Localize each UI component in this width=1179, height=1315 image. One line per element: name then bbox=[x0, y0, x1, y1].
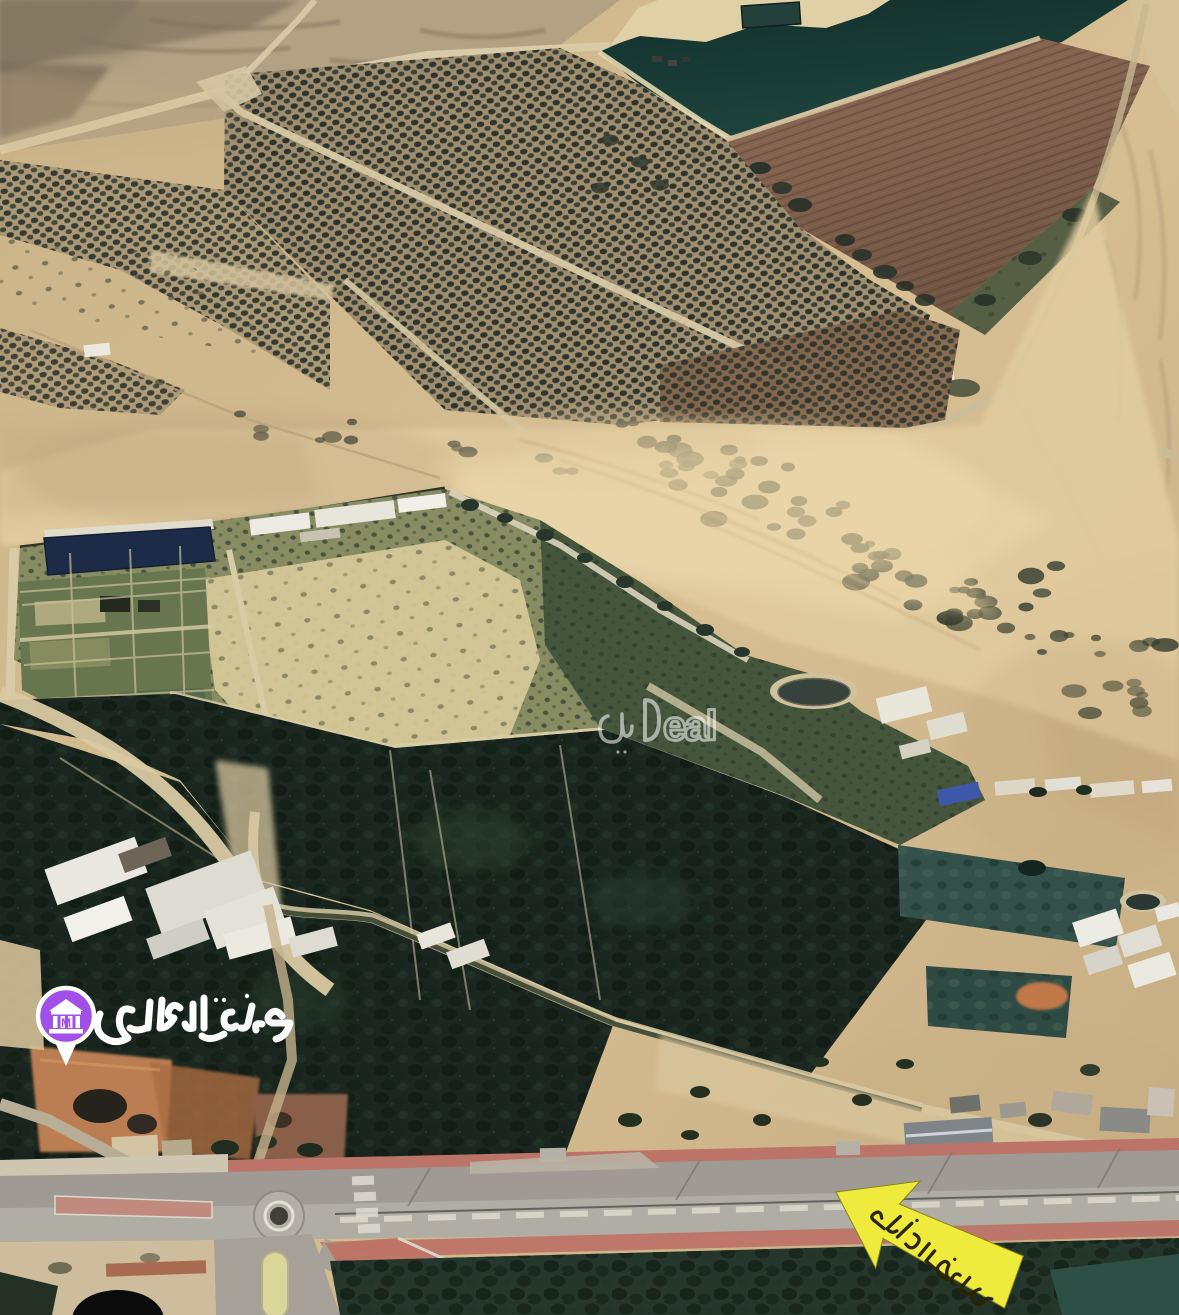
svg-text:M: M bbox=[61, 1016, 71, 1030]
svg-text:eal: eal bbox=[663, 702, 715, 749]
